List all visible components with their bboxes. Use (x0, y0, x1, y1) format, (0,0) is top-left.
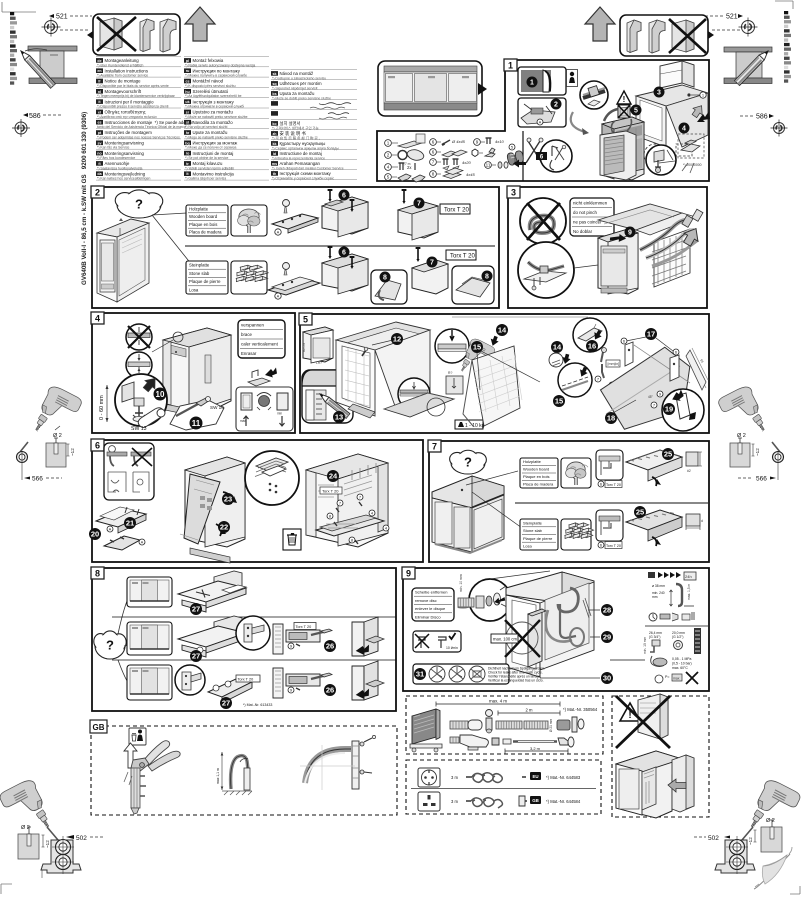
svg-text:27: 27 (192, 605, 200, 614)
svg-text:7: 7 (432, 442, 437, 452)
svg-text:A: A (109, 526, 112, 531)
svg-text:Steinplatte: Steinplatte (189, 263, 210, 268)
svg-text:24: 24 (329, 472, 338, 481)
svg-text:Stone slab: Stone slab (189, 271, 210, 276)
svg-text:Holzplatte: Holzplatte (189, 206, 209, 211)
svg-text:Ø 2: Ø 2 (766, 818, 775, 824)
svg-text:min: min (277, 412, 282, 416)
svg-text:15: 15 (555, 397, 563, 406)
svg-text:max 1,1 m: max 1,1 m (216, 768, 220, 784)
svg-text:pl: pl (186, 59, 189, 63)
svg-text:caler verticalement: caler verticalement (241, 342, 279, 347)
svg-text:21: 21 (126, 519, 134, 528)
svg-text:Holzplatte: Holzplatte (523, 459, 542, 464)
svg-text:6: 6 (432, 140, 435, 145)
svg-text:P=: P= (665, 675, 670, 679)
svg-text:Torx T 20: Torx T 20 (444, 208, 469, 214)
svg-text:!: ! (623, 95, 626, 104)
svg-text:Torx T 20: Torx T 20 (606, 544, 621, 548)
svg-text:5: 5 (387, 175, 390, 180)
svg-text:Torx T 20: Torx T 20 (450, 254, 475, 260)
svg-text:5: 5 (634, 108, 638, 115)
svg-text:en: en (97, 69, 101, 73)
svg-text:26: 26 (326, 686, 334, 695)
svg-text:Placa de madera: Placa de madera (189, 230, 222, 235)
svg-text:3: 3 (657, 90, 661, 97)
svg-text:enlever le disque: enlever le disque (415, 606, 446, 611)
svg-text:2: 2 (95, 188, 100, 198)
svg-text:de: de (97, 59, 101, 63)
svg-text:5: 5 (303, 315, 308, 325)
svg-text:LH?: LH? (316, 361, 322, 365)
svg-text:min. 10 mm: min. 10 mm (643, 637, 647, 654)
svg-text:brace: brace (241, 332, 253, 337)
svg-text:max: max (240, 419, 246, 423)
svg-text:28: 28 (603, 606, 611, 615)
svg-text:1 - 10 kg: 1 - 10 kg (465, 423, 485, 429)
svg-text:2: 2 (554, 102, 558, 109)
svg-text:d: d (701, 519, 703, 523)
svg-text:*) Mat.-Nr. 644584: *) Mat.-Nr. 644584 (546, 799, 581, 804)
svg-text:Torx T 20: Torx T 20 (606, 483, 621, 487)
svg-text:22: 22 (220, 523, 228, 532)
svg-text:566: 566 (756, 476, 767, 483)
svg-text:nl: nl (98, 90, 101, 94)
svg-text:Scheibe entfernen: Scheibe entfernen (415, 590, 447, 595)
svg-text:9: 9 (476, 140, 479, 145)
svg-text:31: 31 (416, 670, 424, 679)
svg-text:16: 16 (588, 342, 596, 351)
svg-text:45°: 45° (648, 395, 654, 399)
svg-text:13: 13 (335, 413, 343, 422)
svg-text:es: es (98, 121, 102, 125)
svg-text:27: 27 (222, 699, 230, 708)
svg-text:~12: ~12 (755, 448, 760, 456)
svg-text:Plaque de pierre: Plaque de pierre (189, 279, 221, 284)
svg-text:4x45: 4x45 (466, 172, 475, 177)
svg-text:27: 27 (192, 652, 200, 661)
svg-text:Verificar la estanqueidad tras: Verificar la estanqueidad tras un ciclo. (488, 679, 544, 683)
svg-text:max: max (673, 677, 680, 681)
svg-text:max. 60°C: max. 60°C (672, 666, 688, 670)
svg-text:Wooden board: Wooden board (523, 467, 549, 472)
svg-text:A: A (141, 539, 144, 544)
svg-text:ms: ms (272, 162, 277, 166)
svg-text:1: 1 (508, 61, 513, 71)
svg-text:Plaque en bois: Plaque en bois (523, 474, 549, 479)
svg-text:Wooden board: Wooden board (189, 214, 218, 219)
svg-text:14: 14 (498, 326, 507, 335)
svg-text:7: 7 (417, 201, 421, 208)
svg-text:zh: zh (273, 132, 277, 136)
svg-text:Ø 2: Ø 2 (21, 825, 30, 831)
svg-text:Placa de madera: Placa de madera (523, 482, 554, 487)
svg-text:20: 20 (91, 530, 99, 539)
svg-text:kk: kk (273, 142, 277, 146)
svg-text:GB: GB (532, 798, 539, 803)
svg-text:586: 586 (756, 114, 768, 121)
svg-text:502: 502 (76, 835, 87, 842)
svg-text:sr: sr (186, 110, 190, 114)
svg-text:19: 19 (665, 405, 673, 414)
svg-text:11: 11 (486, 163, 491, 168)
svg-text:GV640B Voll-I - 86,5 cm - k.SW: GV640B Voll-I - 86,5 cm - k.SW mit GS 92… (81, 112, 88, 285)
svg-text:th: th (273, 172, 276, 176)
svg-text:586: 586 (29, 113, 41, 120)
svg-text:23: 23 (224, 495, 232, 504)
svg-text:sl: sl (186, 121, 189, 125)
svg-text:15: 15 (473, 343, 481, 352)
svg-text:8: 8 (432, 172, 435, 177)
svg-text:2 m: 2 m (526, 708, 533, 713)
svg-text:10: 10 (156, 390, 165, 399)
svg-text:#2: #2 (687, 469, 691, 473)
svg-text:4: 4 (682, 126, 686, 133)
svg-text:3 m: 3 m (451, 775, 458, 780)
svg-text:Ø 21 mm: Ø 21 mm (549, 719, 553, 732)
svg-text:?: ? (106, 638, 114, 653)
svg-text:1: 1 (387, 141, 390, 146)
svg-text:Stone slab: Stone slab (523, 528, 543, 533)
svg-text:Losa: Losa (189, 287, 199, 292)
svg-text:(G 3/4"): (G 3/4") (649, 635, 660, 639)
svg-text:24h: 24h (685, 574, 692, 579)
svg-text:Losa: Losa (523, 544, 532, 549)
svg-text:6: 6 (432, 150, 435, 155)
svg-text:*) Mat.-Nr. 350564: *) Mat.-Nr. 350564 (563, 707, 598, 712)
svg-text:26: 26 (326, 642, 334, 651)
svg-text:~12: ~12 (45, 840, 50, 848)
svg-text:2: 2 (387, 153, 390, 158)
svg-text:566: 566 (32, 476, 43, 483)
svg-text:sv: sv (98, 141, 102, 145)
svg-text:Ø 4x45: Ø 4x45 (451, 139, 466, 144)
svg-text:Eliminar Disco: Eliminar Disco (415, 614, 441, 619)
svg-text:remove disc: remove disc (415, 598, 437, 603)
svg-text:id: id (273, 152, 276, 156)
svg-text:4: 4 (387, 165, 390, 170)
svg-text:25: 25 (636, 508, 644, 517)
svg-text:6: 6 (342, 193, 346, 200)
svg-text:0 - 60 mm: 0 - 60 mm (99, 395, 105, 420)
svg-text:6: 6 (342, 250, 346, 257)
svg-text:?: ? (135, 197, 143, 212)
svg-text:sk: sk (273, 72, 277, 76)
svg-text:SW 13: SW 13 (131, 426, 147, 432)
svg-text:ru: ru (186, 69, 190, 73)
svg-text:Plaque de pierre: Plaque de pierre (523, 536, 553, 541)
svg-text:max. 4 m: max. 4 m (489, 699, 507, 704)
svg-text:9: 9 (628, 230, 632, 237)
svg-text:521: 521 (726, 14, 738, 21)
svg-text:SW 10: SW 10 (210, 405, 224, 410)
svg-text:3: 3 (511, 188, 516, 198)
svg-text:8: 8 (95, 569, 100, 579)
svg-text:30: 30 (603, 674, 611, 683)
svg-text:No doblar: No doblar (573, 229, 593, 234)
svg-text:~12: ~12 (70, 448, 75, 456)
svg-text:4x10: 4x10 (495, 139, 504, 144)
svg-text:29: 29 (603, 633, 611, 642)
svg-text:Steinplatte: Steinplatte (523, 520, 543, 525)
svg-text:hu: hu (185, 90, 189, 94)
svg-text:(G 1/2"): (G 1/2") (672, 635, 683, 639)
svg-text:[mm|in]: [mm|in] (608, 362, 620, 366)
svg-text:4: 4 (95, 314, 100, 324)
svg-text:8: 8 (383, 275, 387, 282)
svg-text:521: 521 (56, 14, 68, 21)
svg-text:17: 17 (647, 330, 655, 339)
svg-text:~12: ~12 (748, 837, 753, 845)
svg-text:6: 6 (95, 441, 100, 451)
svg-text:sq: sq (272, 82, 276, 86)
svg-text:Torx T 20: Torx T 20 (322, 489, 339, 494)
svg-text:min. 10 mm: min. 10 mm (459, 574, 463, 592)
svg-text:?: ? (464, 455, 472, 470)
svg-text:bg: bg (185, 141, 189, 145)
svg-text:7: 7 (430, 260, 434, 267)
svg-text:*) Mat.-Nr. 613433: *) Mat.-Nr. 613433 (243, 703, 272, 707)
svg-text:Plaque en bois: Plaque en bois (189, 222, 217, 227)
svg-text:9: 9 (406, 569, 411, 579)
svg-text:12: 12 (393, 335, 401, 344)
svg-text:EU: EU (532, 774, 538, 779)
svg-text:502: 502 (708, 835, 719, 842)
svg-text:4x20: 4x20 (462, 160, 471, 165)
svg-text:14: 14 (553, 343, 562, 352)
svg-text:cs: cs (186, 80, 190, 84)
svg-text:hr: hr (186, 131, 190, 135)
svg-text:nicht einklemmen: nicht einklemmen (573, 201, 608, 206)
svg-text:Enrasar: Enrasar (241, 351, 257, 356)
svg-text:max. 100 cm: max. 100 cm (493, 637, 517, 642)
svg-text:8: 8 (485, 274, 489, 281)
svg-text:3 m: 3 m (451, 799, 458, 804)
svg-text:max. 1,5 m: max. 1,5 m (687, 583, 691, 600)
svg-text:verspannen: verspannen (241, 323, 265, 328)
svg-text:R?: R? (448, 371, 452, 375)
svg-text:A: A (539, 119, 542, 124)
svg-text:A: A (277, 293, 280, 298)
svg-text:7: 7 (432, 160, 435, 165)
svg-text:el: el (98, 110, 101, 114)
svg-text:Torx T 20: Torx T 20 (238, 678, 254, 682)
svg-text:Torx T 20: Torx T 20 (296, 625, 312, 629)
svg-text:mm: mm (652, 595, 658, 599)
svg-text:1: 1 (530, 80, 534, 87)
svg-text:3,2 m: 3,2 m (530, 746, 541, 751)
svg-text:fi: fi (98, 162, 100, 166)
svg-text:uk: uk (185, 100, 189, 104)
svg-text:11: 11 (192, 419, 201, 428)
svg-text:ø 38 mm: ø 38 mm (652, 584, 665, 588)
svg-text:A: A (277, 229, 280, 234)
svg-text:0,05 - 1 MPa: 0,05 - 1 MPa (672, 657, 692, 661)
svg-text:18: 18 (607, 414, 615, 423)
svg-text:10 l/min: 10 l/min (446, 646, 458, 650)
svg-text:25: 25 (664, 450, 672, 459)
svg-text:*) Mat.-Nr. 644583: *) Mat.-Nr. 644583 (546, 775, 581, 780)
svg-text:60 cm: 60 cm (302, 343, 306, 352)
svg-text:do not pinch: do not pinch (573, 210, 597, 215)
svg-text:GB: GB (93, 723, 105, 732)
svg-text:(0,5 - 10 bar): (0,5 - 10 bar) (672, 662, 692, 666)
svg-text:bs: bs (272, 92, 276, 96)
